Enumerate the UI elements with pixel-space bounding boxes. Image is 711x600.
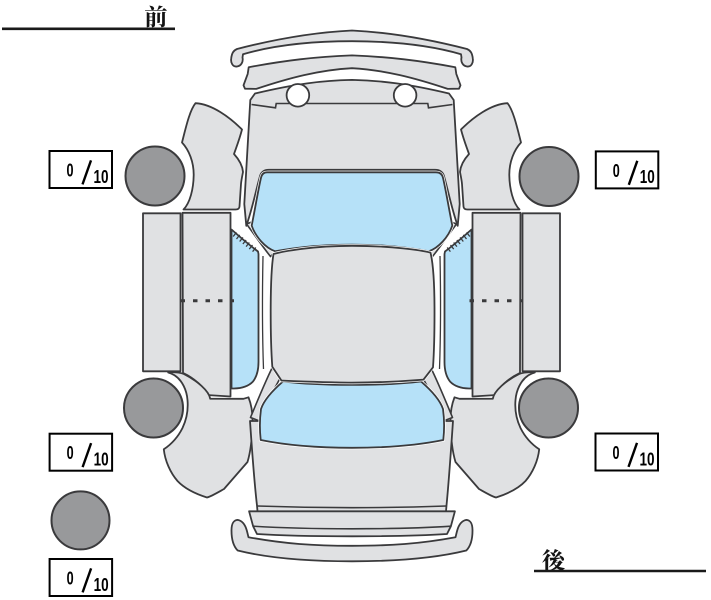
svg-text:0: 0 bbox=[67, 443, 74, 463]
svg-text:10: 10 bbox=[94, 450, 109, 470]
svg-text:0: 0 bbox=[67, 160, 74, 180]
svg-text:10: 10 bbox=[640, 167, 655, 187]
svg-text:10: 10 bbox=[94, 167, 109, 187]
svg-text:10: 10 bbox=[94, 575, 109, 595]
svg-text:0: 0 bbox=[613, 161, 620, 181]
svg-text:0: 0 bbox=[613, 443, 620, 463]
svg-text:10: 10 bbox=[640, 449, 655, 469]
svg-text:0: 0 bbox=[67, 568, 74, 588]
